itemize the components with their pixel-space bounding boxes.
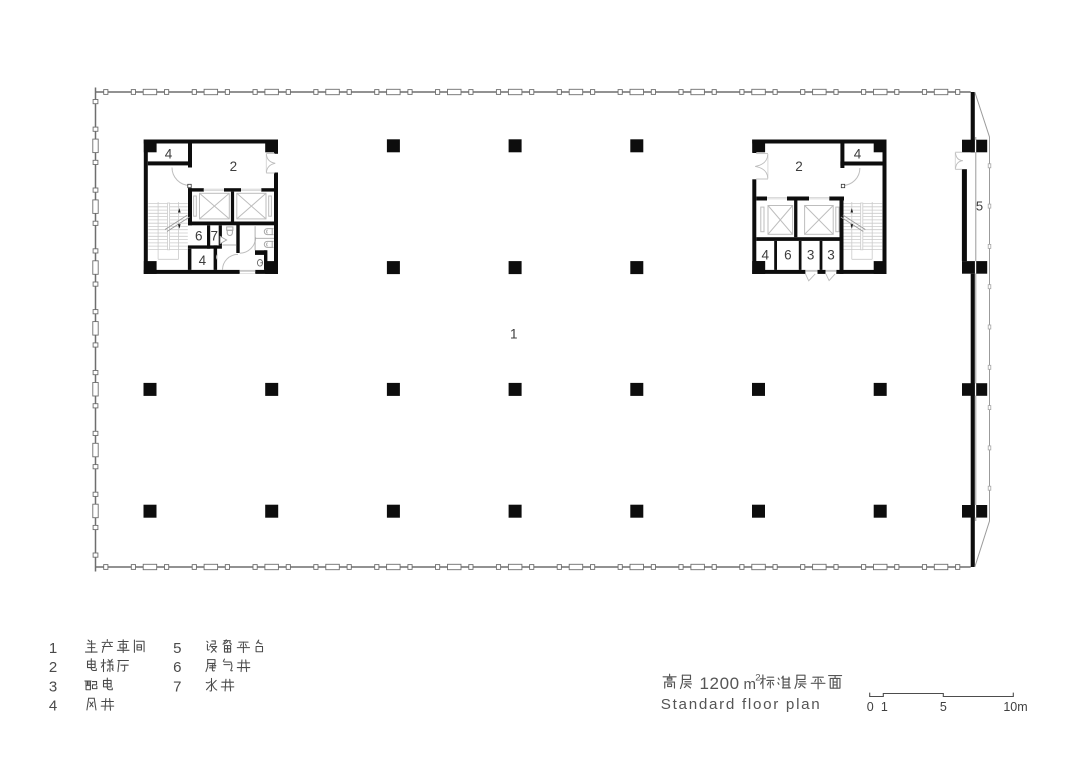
svg-text:5: 5 (940, 700, 947, 714)
svg-text:5: 5 (173, 640, 181, 657)
svg-text:6: 6 (195, 228, 203, 243)
svg-text:4: 4 (762, 248, 770, 263)
svg-text:4: 4 (165, 147, 173, 162)
svg-text:Standard floor plan: Standard floor plan (661, 696, 822, 713)
svg-text:3: 3 (49, 678, 57, 695)
svg-text:5: 5 (976, 199, 983, 214)
svg-text:2: 2 (795, 159, 803, 174)
svg-text:4: 4 (854, 147, 862, 162)
svg-text:1: 1 (510, 327, 518, 342)
svg-text:10m: 10m (1003, 700, 1027, 714)
svg-text:1200: 1200 (700, 674, 740, 693)
svg-text:4: 4 (199, 253, 207, 268)
svg-text:1: 1 (49, 640, 57, 657)
svg-text:3: 3 (827, 248, 835, 263)
svg-text:7: 7 (173, 678, 181, 695)
svg-text:0: 0 (867, 700, 874, 714)
svg-text:7: 7 (211, 228, 219, 243)
svg-text:m: m (744, 676, 757, 693)
svg-text:6: 6 (784, 248, 792, 263)
svg-text:2: 2 (755, 673, 760, 684)
svg-text:1: 1 (881, 700, 888, 714)
svg-text:6: 6 (173, 659, 181, 676)
svg-text:3: 3 (807, 248, 815, 263)
svg-text:2: 2 (230, 159, 238, 174)
svg-text:4: 4 (49, 698, 57, 715)
svg-text:2: 2 (49, 659, 57, 676)
